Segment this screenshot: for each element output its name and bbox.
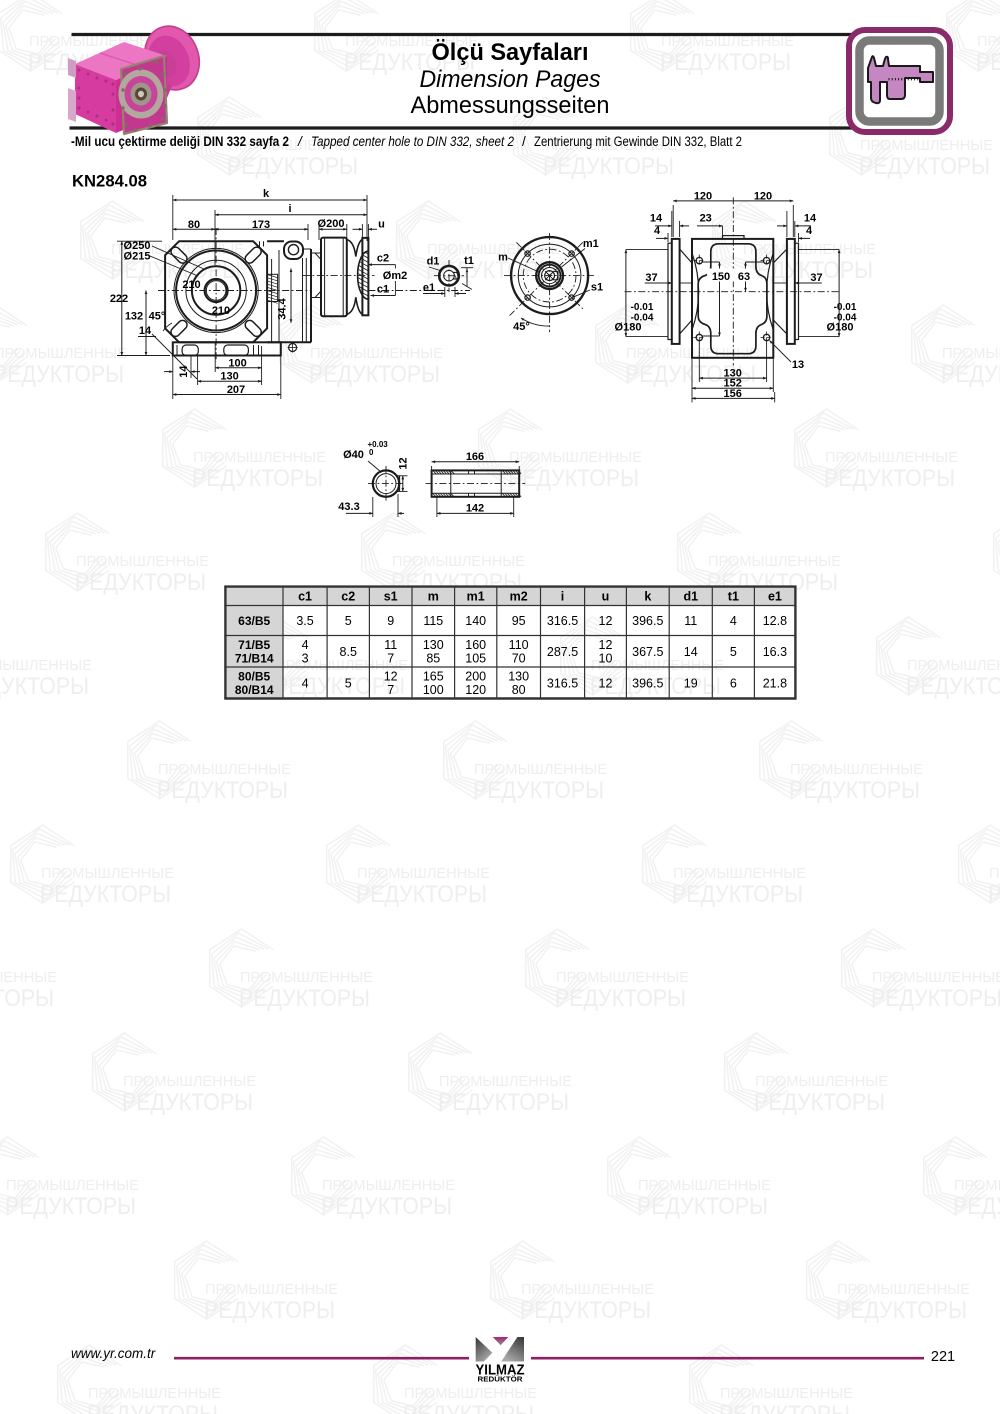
svg-text:142: 142 — [466, 503, 484, 515]
svg-text:43.3: 43.3 — [338, 501, 359, 513]
svg-text:9: 9 — [387, 614, 394, 628]
svg-text:c2: c2 — [377, 253, 389, 265]
svg-text:REDÜKTÖR: REDÜKTÖR — [478, 1375, 523, 1384]
svg-text:10: 10 — [599, 651, 613, 665]
svg-text:70: 70 — [512, 651, 526, 665]
svg-text:14: 14 — [650, 213, 663, 225]
svg-text:t1: t1 — [728, 590, 739, 604]
svg-text:115: 115 — [423, 614, 443, 628]
svg-text:11: 11 — [384, 638, 397, 652]
svg-text:i: i — [561, 590, 564, 604]
svg-text:4: 4 — [654, 225, 661, 237]
svg-text:45°: 45° — [149, 311, 166, 323]
svg-text:m: m — [498, 251, 508, 263]
svg-text:4: 4 — [806, 225, 813, 237]
svg-text:173: 173 — [252, 219, 270, 231]
svg-text:132: 132 — [125, 311, 143, 323]
svg-text:210: 210 — [182, 279, 200, 291]
svg-text:s1: s1 — [384, 590, 398, 604]
svg-text:12: 12 — [384, 670, 398, 684]
svg-text:4: 4 — [302, 676, 309, 690]
svg-text:7: 7 — [387, 683, 394, 697]
svg-text:m2: m2 — [510, 590, 528, 604]
svg-text:k: k — [263, 188, 270, 200]
svg-text:-Mil ucu çektirme deliği DIN 3: -Mil ucu çektirme deliği DIN 332 sayfa 2 — [71, 134, 289, 149]
svg-text:c1: c1 — [298, 590, 312, 604]
svg-text:71/B14: 71/B14 — [235, 651, 274, 665]
svg-text:130: 130 — [508, 670, 529, 684]
svg-text:m1: m1 — [467, 590, 485, 604]
svg-text:150: 150 — [712, 271, 730, 283]
svg-text:Ø180: Ø180 — [615, 322, 642, 334]
svg-text:13: 13 — [792, 359, 804, 371]
svg-text:e1: e1 — [768, 590, 782, 604]
svg-text:120: 120 — [754, 190, 772, 202]
svg-text:200: 200 — [465, 670, 486, 684]
svg-text:-0.01: -0.01 — [631, 302, 654, 313]
svg-text:63: 63 — [738, 271, 750, 283]
svg-text:316.5: 316.5 — [547, 676, 578, 690]
svg-text:71/B5: 71/B5 — [238, 638, 270, 652]
svg-text:Ø200: Ø200 — [318, 218, 345, 230]
svg-text:11: 11 — [684, 614, 697, 628]
svg-text:3.5: 3.5 — [296, 614, 313, 628]
svg-text:100: 100 — [228, 357, 246, 369]
svg-text:165: 165 — [423, 670, 444, 684]
svg-text:12: 12 — [397, 457, 409, 469]
svg-text:s1: s1 — [591, 282, 603, 294]
svg-text:45°: 45° — [513, 321, 530, 333]
svg-text:19: 19 — [684, 676, 698, 690]
svg-text:16.3: 16.3 — [763, 645, 787, 659]
svg-text:12: 12 — [599, 638, 613, 652]
svg-text:Ø40: Ø40 — [343, 449, 364, 461]
svg-text:u: u — [378, 219, 385, 231]
svg-text:120: 120 — [465, 683, 486, 697]
svg-text:6: 6 — [730, 676, 737, 690]
svg-text:-0.01: -0.01 — [834, 302, 857, 313]
svg-text:95: 95 — [512, 614, 526, 628]
svg-text:Ø215: Ø215 — [124, 250, 151, 262]
svg-text:63/B5: 63/B5 — [238, 614, 270, 628]
svg-text:k: k — [644, 590, 651, 604]
svg-text:KN284.08: KN284.08 — [72, 173, 147, 191]
svg-text:105: 105 — [465, 651, 486, 665]
svg-text:21.8: 21.8 — [763, 676, 787, 690]
svg-text:12: 12 — [599, 614, 613, 628]
svg-text:8.5: 8.5 — [340, 645, 357, 659]
svg-text:14: 14 — [178, 365, 190, 378]
svg-text:t1: t1 — [464, 255, 474, 267]
svg-text:d1: d1 — [427, 256, 440, 268]
svg-text:80/B14: 80/B14 — [235, 683, 274, 697]
svg-text:14: 14 — [684, 645, 698, 659]
svg-text:367.5: 367.5 — [632, 645, 663, 659]
svg-text:4: 4 — [302, 638, 309, 652]
svg-text:c1: c1 — [377, 283, 389, 295]
svg-text:80: 80 — [188, 219, 200, 231]
svg-text:Zentrierung mit Gewinde DIN 33: Zentrierung mit Gewinde DIN 332, Blatt 2 — [534, 134, 742, 149]
svg-text:80: 80 — [512, 683, 526, 697]
svg-text:396.5: 396.5 — [632, 676, 663, 690]
svg-text:287.5: 287.5 — [547, 645, 578, 659]
svg-text:140: 140 — [465, 614, 486, 628]
svg-text:Ölçü Sayfaları: Ölçü Sayfaları — [432, 39, 589, 66]
svg-text:130: 130 — [220, 371, 238, 383]
svg-text:e1: e1 — [423, 282, 435, 294]
svg-text:210: 210 — [212, 305, 230, 317]
svg-text:156: 156 — [724, 388, 742, 400]
svg-text:110: 110 — [509, 638, 529, 652]
svg-text:Ø180: Ø180 — [827, 322, 854, 334]
svg-text:Øm2: Øm2 — [383, 270, 407, 282]
svg-text:14: 14 — [139, 325, 152, 337]
svg-text:120: 120 — [694, 190, 712, 202]
svg-text:85: 85 — [426, 651, 440, 665]
svg-text:Dimension Pages: Dimension Pages — [420, 66, 601, 93]
svg-text:Tapped center hole to DIN 332,: Tapped center hole to DIN 332, sheet 2 — [311, 134, 514, 149]
svg-text:207: 207 — [227, 384, 245, 396]
svg-text:3: 3 — [302, 651, 309, 665]
svg-text:5: 5 — [345, 614, 352, 628]
svg-text:5: 5 — [345, 676, 352, 690]
svg-text:23: 23 — [700, 213, 712, 225]
svg-text:221: 221 — [931, 1349, 955, 1365]
svg-text:14: 14 — [804, 213, 817, 225]
svg-text:u: u — [602, 590, 610, 604]
svg-text:www.yr.com.tr: www.yr.com.tr — [71, 1346, 156, 1361]
svg-text:34.4: 34.4 — [277, 297, 289, 319]
svg-text:7: 7 — [387, 651, 394, 665]
svg-text:100: 100 — [423, 683, 444, 697]
svg-text:m1: m1 — [583, 238, 599, 250]
svg-text:d1: d1 — [683, 590, 698, 604]
svg-text:130: 130 — [423, 638, 444, 652]
svg-text:i: i — [288, 203, 291, 215]
svg-text:c2: c2 — [341, 590, 355, 604]
svg-text:80/B5: 80/B5 — [238, 670, 270, 684]
svg-text:12: 12 — [599, 676, 613, 690]
svg-text:37: 37 — [645, 272, 657, 284]
svg-text:37: 37 — [810, 272, 822, 284]
svg-text:0: 0 — [369, 448, 374, 457]
svg-text:m: m — [428, 590, 439, 604]
svg-text:396.5: 396.5 — [632, 614, 663, 628]
svg-text:166: 166 — [466, 451, 484, 463]
svg-text:12.8: 12.8 — [763, 614, 787, 628]
svg-text:4: 4 — [730, 614, 737, 628]
svg-text:160: 160 — [465, 638, 486, 652]
svg-text:Abmessungsseiten: Abmessungsseiten — [411, 92, 610, 119]
svg-text:222: 222 — [110, 293, 128, 305]
svg-text:316.5: 316.5 — [547, 614, 578, 628]
svg-text:/: / — [522, 134, 526, 149]
svg-text:5: 5 — [730, 645, 737, 659]
